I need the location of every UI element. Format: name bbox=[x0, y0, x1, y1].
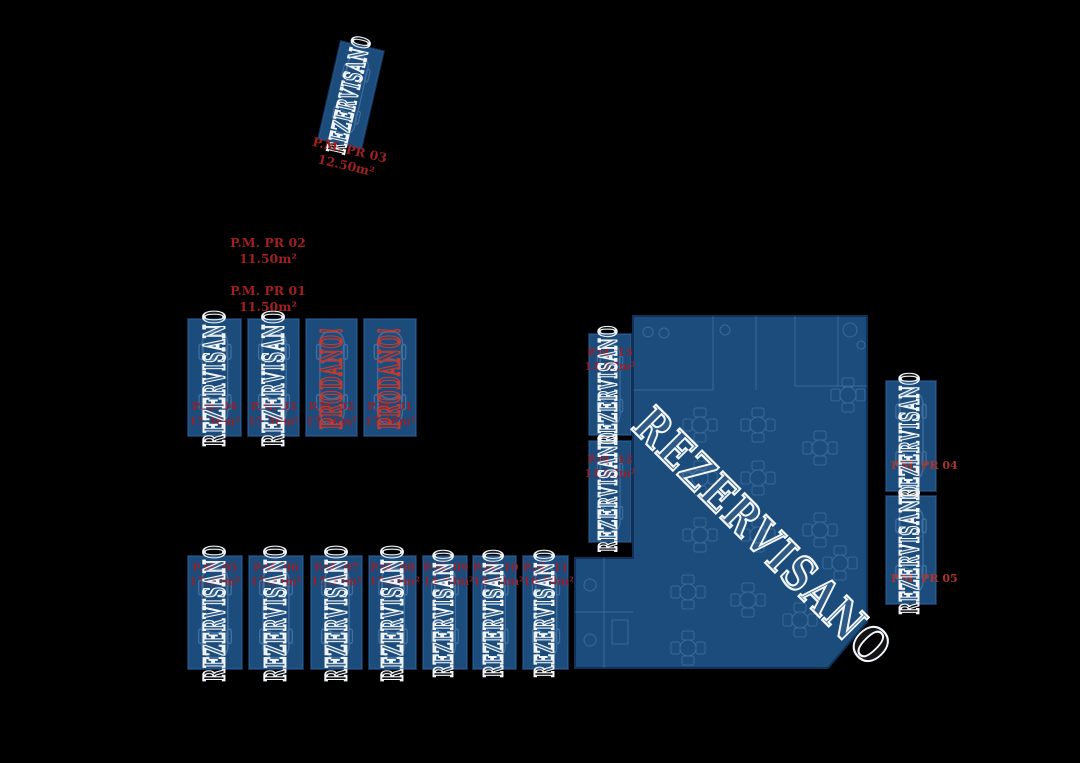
parking-spot-p-m-07[interactable]: P.M. 0717.36m²REZERVISANO bbox=[310, 555, 363, 670]
status-text: REZERVISANO bbox=[430, 548, 460, 677]
parking-spot-p-m-13[interactable]: P.M. 1311.62m²REZERVISANO bbox=[588, 333, 632, 436]
spot-name: P.M. PR 02 bbox=[223, 235, 313, 251]
parking-spot-p-m-10[interactable]: P.M. 1014.40m²REZERVISANO bbox=[472, 555, 517, 670]
spot-name: P.M. PR 01 bbox=[223, 283, 313, 299]
free-spot-label-pr-02: P.M. PR 02 11.50m² bbox=[223, 235, 313, 266]
parking-spot-p-m-12[interactable]: P.M. 1211.62m²REZERVISANO bbox=[588, 440, 632, 543]
status-text: PRODANO! bbox=[373, 326, 407, 429]
status-text: REZERVISANO bbox=[259, 544, 293, 681]
status-text: PRODANO! bbox=[314, 326, 348, 429]
status-text: REZERVISANO bbox=[596, 324, 625, 444]
status-text: REZERVISANO bbox=[596, 431, 625, 551]
parking-spot-p-m-02[interactable]: P.M. 0217.36m²PRODANO! bbox=[305, 318, 358, 437]
status-text: REZERVISANO bbox=[197, 309, 231, 446]
parking-spot-p-m-08[interactable]: P.M. 0817.36m²REZERVISANO bbox=[368, 555, 417, 670]
status-text: REZERVISANO bbox=[896, 486, 926, 615]
spot-area: 11.50m² bbox=[223, 251, 313, 267]
free-spot-label-pr-01: P.M. PR 01 11.50m² bbox=[223, 283, 313, 314]
parking-spot-p-m-04[interactable]: P.M. 0417.36m²REZERVISANO bbox=[187, 318, 242, 437]
status-text: REZERVISANO bbox=[319, 544, 353, 681]
status-text: REZERVISANO bbox=[479, 548, 509, 677]
status-text: REZERVISANO bbox=[198, 544, 232, 681]
parking-spot-p-m-pr-03[interactable]: REZERVISANO bbox=[317, 40, 385, 150]
parking-spot-p-m-pr-05[interactable]: P.M. PR 05REZERVISANO bbox=[885, 495, 937, 605]
parking-spot-p-m-11[interactable]: P.M. 1116.50m²REZERVISANO bbox=[522, 555, 569, 670]
garage-floor-plan: REZERVISANO P.M. PR 03 12.50m² P.M. PR 0… bbox=[0, 0, 1080, 763]
parking-spot-p-m-06[interactable]: P.M. 0617.36m²REZERVISANO bbox=[248, 555, 304, 670]
parking-spot-p-m-05[interactable]: P.M. 0517.36m²REZERVISANO bbox=[187, 555, 243, 670]
spot-area: 11.50m² bbox=[223, 299, 313, 315]
parking-spot-p-m-03[interactable]: P.M. 0317.36m²REZERVISANO bbox=[247, 318, 300, 437]
status-text: REZERVISANO bbox=[530, 548, 560, 677]
status-text: REZERVISANO bbox=[896, 372, 926, 501]
parking-spot-p-m-pr-04[interactable]: P.M. PR 04REZERVISANO bbox=[885, 380, 937, 492]
parking-spot-p-m-09[interactable]: P.M. 0914.40m²REZERVISANO bbox=[422, 555, 468, 670]
parking-spot-p-m-01[interactable]: P.M. 0117.48m²PRODANO! bbox=[363, 318, 417, 437]
status-text: REZERVISANO bbox=[375, 544, 409, 681]
status-text: REZERVISANO bbox=[256, 309, 290, 446]
